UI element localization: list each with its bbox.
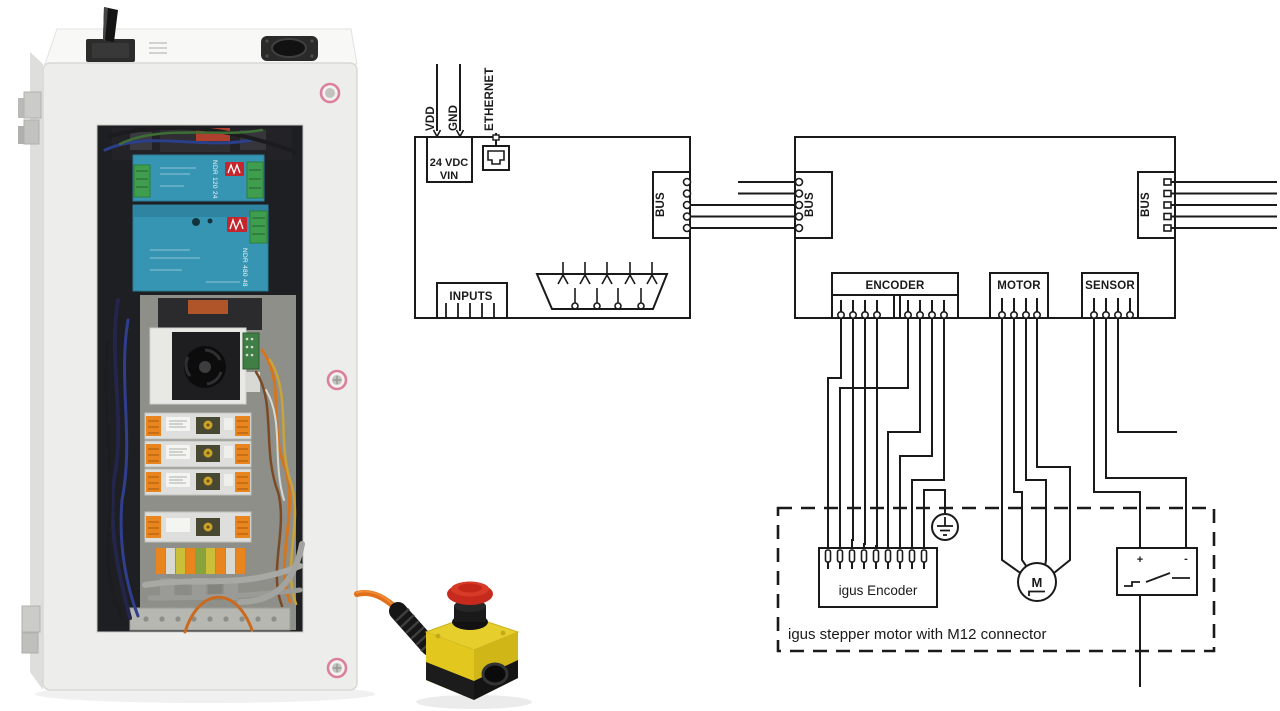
igus-encoder-connector: igus Encoder xyxy=(819,548,937,607)
window-screw xyxy=(321,84,339,102)
din-rail xyxy=(130,608,290,630)
bus-connector-controller: BUS xyxy=(653,172,691,238)
sensor-switch: + - xyxy=(1117,548,1197,595)
psu-ndr-480-48: NDR 480 48 xyxy=(133,205,268,291)
vin-label-line1: 24 VDC xyxy=(430,157,469,169)
sensor-minus-label: - xyxy=(1184,553,1188,565)
scene: NDR 120 24 NDR 480 48 xyxy=(0,0,1280,711)
cabinet-window: NDR 120 24 NDR 480 48 xyxy=(97,125,303,632)
ethernet-port: ETHERNET xyxy=(483,67,509,170)
mw-logo xyxy=(225,162,244,176)
terminal-blocks xyxy=(156,548,245,600)
rj45-jack-icon xyxy=(483,146,509,170)
vin-label-line2: VIN xyxy=(440,170,458,182)
cabinet-left-face xyxy=(30,52,43,690)
ethernet-label: ETHERNET xyxy=(484,67,496,131)
sensor-plus-label: + xyxy=(1137,554,1143,566)
emergency-stop-button xyxy=(426,582,518,701)
psu-ndr-120-24: NDR 120 24 xyxy=(133,155,264,201)
bus-label-driver-in: BUS xyxy=(804,192,816,217)
top-connector xyxy=(261,36,318,61)
bus-connector-driver-left: BUS xyxy=(795,172,832,238)
driver-module xyxy=(145,413,251,439)
motor-label: MOTOR xyxy=(997,280,1041,292)
encoder-port: ENCODER xyxy=(832,273,958,318)
sensor-port: SENSOR xyxy=(1082,273,1138,318)
window-screw xyxy=(328,659,346,677)
bus-cable xyxy=(691,182,796,228)
fan-unit xyxy=(150,298,262,404)
psu2-label: NDR 480 48 xyxy=(241,248,248,287)
power-input-terminal: 24 VDC VIN VDD GND xyxy=(425,64,472,182)
inputs-connector: INPUTS xyxy=(437,283,507,318)
psu1-label: NDR 120 24 xyxy=(211,160,218,199)
igus-encoder-label: igus Encoder xyxy=(839,583,918,598)
assembly-caption: igus stepper motor with M12 connector xyxy=(788,626,1046,643)
sensor-wires xyxy=(1094,318,1186,687)
driver-module xyxy=(145,469,251,495)
motor-symbol: M xyxy=(1018,563,1056,601)
emergency-stop-assembly xyxy=(357,582,518,701)
encoder-wires xyxy=(828,318,945,550)
driver-module xyxy=(145,441,251,467)
sensor-label: SENSOR xyxy=(1085,280,1135,292)
bus-label-controller: BUS xyxy=(655,192,667,217)
bus-connector-driver-right: BUS xyxy=(1138,172,1277,238)
gnd-label: GND xyxy=(448,105,460,131)
window-screw xyxy=(328,371,346,389)
encoder-label: ENCODER xyxy=(866,280,925,292)
bus-label-driver-out: BUS xyxy=(1140,192,1152,217)
vdd-label: VDD xyxy=(425,106,437,131)
ground-symbol xyxy=(932,514,958,540)
screenshot-root: { "colors": { "accent_orange": "#ef8318"… xyxy=(0,0,1280,711)
motor-port: MOTOR xyxy=(990,273,1048,318)
driver-modules xyxy=(145,413,251,542)
driver-module xyxy=(145,512,251,542)
inputs-label: INPUTS xyxy=(449,291,493,303)
motor-symbol-label: M xyxy=(1031,575,1042,590)
motor-wires xyxy=(1002,318,1070,577)
wiring-schematic: 24 VDC VIN VDD GND ETHERNET INPUTS xyxy=(415,64,1277,687)
